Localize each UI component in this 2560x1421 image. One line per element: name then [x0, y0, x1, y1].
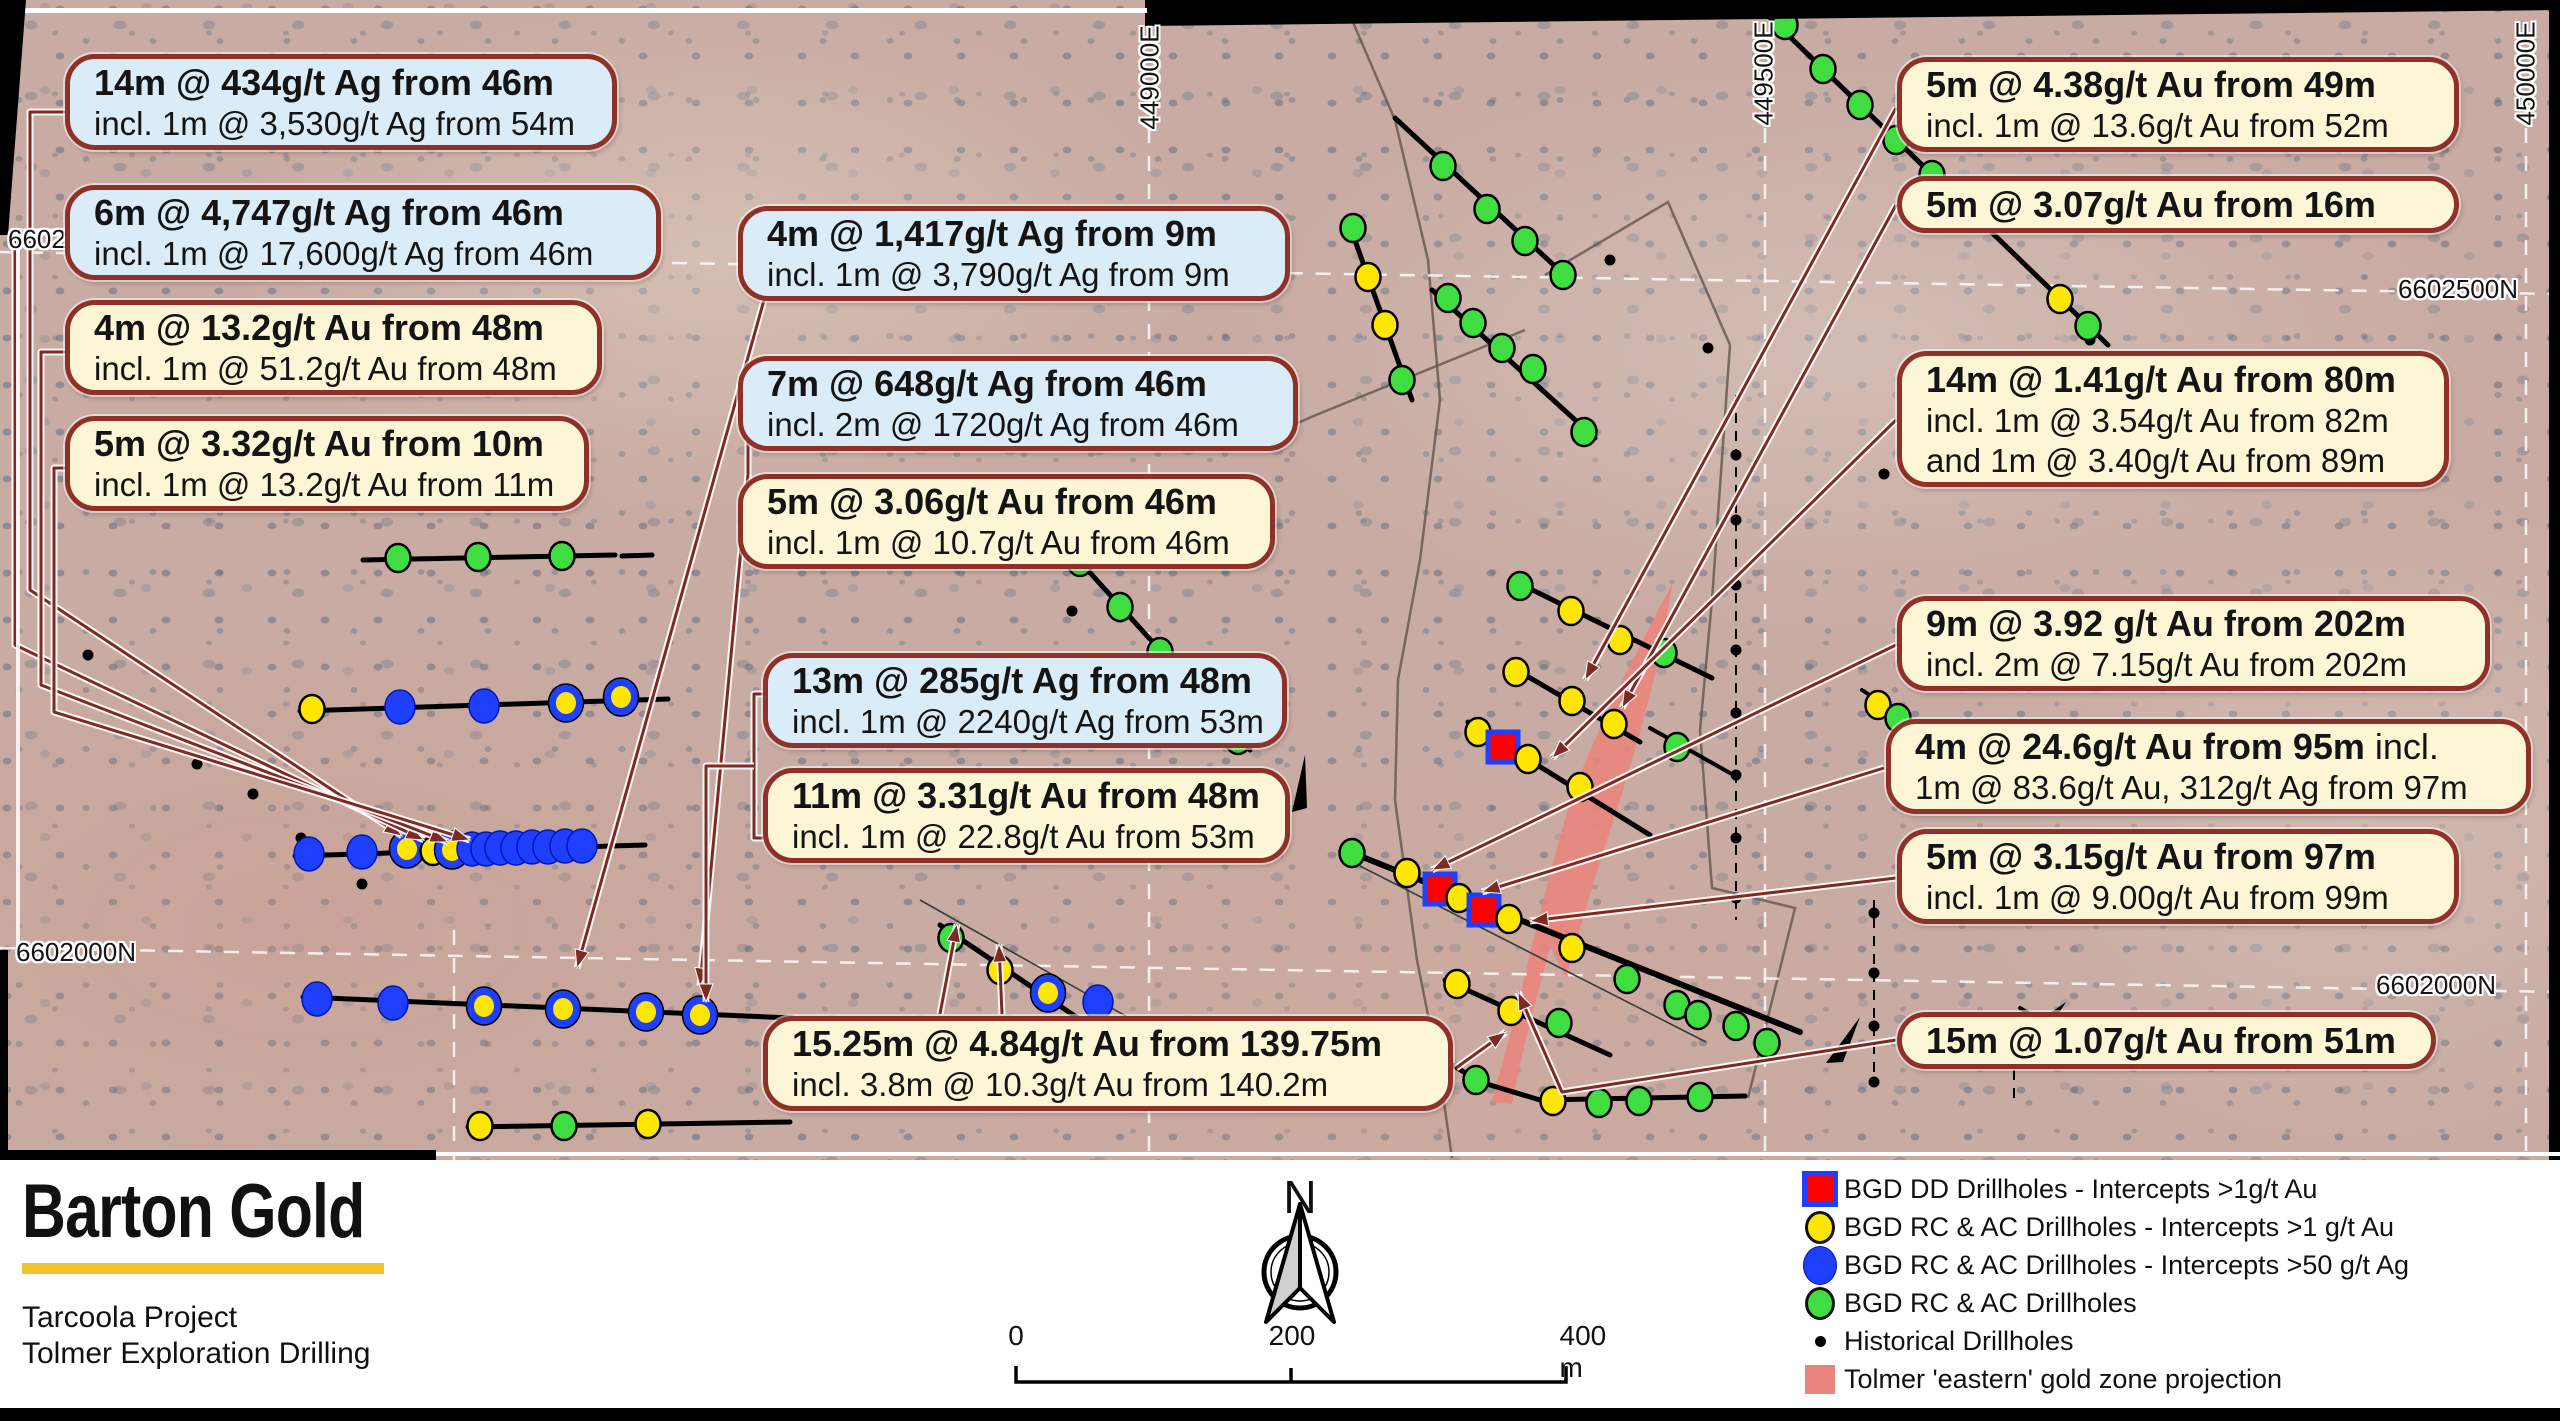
- leader-arrowhead: [1432, 856, 1451, 870]
- map-frame-top: [0, 8, 1147, 13]
- scale-bar-line: [960, 1356, 1660, 1396]
- grid-line: [0, 948, 2560, 992]
- intercept-headline: 5m @ 3.06g/t Au from 46m: [767, 480, 1246, 523]
- intercept-detail: incl. 1m @ 17,600g/t Ag from 46m: [94, 234, 632, 274]
- leader-casing: [706, 766, 754, 1002]
- intercept-callout-c17: 15m @ 1.07g/t Au from 51m: [1897, 1012, 2436, 1069]
- legend-label: BGD RC & AC Drillholes - Intercepts >1 g…: [1844, 1212, 2394, 1243]
- scale-200: 200: [1269, 1320, 1316, 1352]
- legend-label: Historical Drillholes: [1844, 1326, 2074, 1357]
- scale-bar: 0 200 400 m: [960, 1320, 1660, 1400]
- rc-ac-drillhole: [1811, 55, 1836, 83]
- rc-ac-drillhole: [1755, 1029, 1780, 1057]
- ag-ring-drillhole-center: [611, 686, 631, 708]
- historical-drillhole-dot: [83, 650, 94, 661]
- au-intercept-drillhole: [1356, 263, 1381, 291]
- historical-drillhole-dot: [1869, 908, 1880, 919]
- ag-ring-drillhole-center: [397, 838, 417, 860]
- intercept-callout-c11: 5m @ 4.38g/t Au from 49mincl. 1m @ 13.6g…: [1897, 57, 2459, 152]
- rc-ac-drillhole: [1547, 1009, 1572, 1037]
- intercept-detail: incl. 3.8m @ 10.3g/t Au from 140.2m: [792, 1065, 1424, 1105]
- intercept-callout-c5: 4m @ 1,417g/t Ag from 9mincl. 1m @ 3,790…: [738, 206, 1290, 301]
- leader-arrowhead: [993, 944, 1007, 962]
- map-frame-bottom: [436, 1152, 2560, 1156]
- ag-intercept-drillhole: [347, 835, 377, 869]
- imagery-edge-bottom: [0, 1150, 436, 1160]
- rc-ac-drillhole: [2076, 312, 2101, 340]
- intercept-headline: 14m @ 1.41g/t Au from 80m: [1926, 358, 2420, 401]
- au-intercept-drillhole: [1559, 597, 1584, 625]
- au-intercept-drillhole: [1560, 934, 1585, 962]
- rc-ac-drillhole: [1686, 1001, 1711, 1029]
- ag-ring-drillhole-center: [636, 1001, 656, 1023]
- au-intercept-drillhole: [1445, 970, 1470, 998]
- intercept-headline: 5m @ 3.07g/t Au from 16m: [1926, 183, 2430, 226]
- rc-ac-drillhole: [1615, 965, 1640, 993]
- au-intercept-drillhole: [300, 695, 325, 723]
- ag-intercept-drillhole: [469, 689, 499, 723]
- dd-drillhole: [1469, 895, 1499, 925]
- azimuth-flag: [1292, 755, 1307, 812]
- rc-ac-drillhole: [1513, 227, 1538, 255]
- intercept-callout-c12: 5m @ 3.07g/t Au from 16m: [1897, 176, 2459, 233]
- intercept-callout-c15: 4m @ 24.6g/t Au from 95m incl.1m @ 83.6g…: [1886, 719, 2531, 814]
- imagery-edge-right: [2549, 0, 2560, 1160]
- grid-label: 6602000N: [2376, 970, 2496, 1001]
- intercept-callout-c4: 5m @ 3.32g/t Au from 10mincl. 1m @ 13.2g…: [65, 416, 589, 511]
- intercept-headline: 6m @ 4,747g/t Ag from 46m: [94, 191, 632, 234]
- historical-drillhole-dot: [1879, 469, 1890, 480]
- map-area: 449000E449500E450000E6602500N6602500N660…: [0, 0, 2560, 1160]
- drill-fence-line: [1432, 290, 1595, 438]
- rc-ac-drillhole: [1341, 214, 1366, 242]
- intercept-detail: incl. 1m @ 3.54g/t Au from 82m: [1926, 401, 2420, 441]
- historical-drillhole-dot: [1731, 450, 1742, 461]
- scale-0: 0: [1008, 1320, 1024, 1352]
- azimuth-flag: [1826, 1017, 1860, 1063]
- rc-ac-drillhole: [1108, 593, 1133, 621]
- intercept-callout-c16: 5m @ 3.15g/t Au from 97mincl. 1m @ 9.00g…: [1897, 829, 2459, 924]
- intercept-detail: incl. 1m @ 51.2g/t Au from 48m: [94, 349, 573, 389]
- historical-drillhole-dot: [357, 879, 368, 890]
- intercept-detail: incl. 1m @ 2240g/t Ag from 53m: [792, 702, 1258, 742]
- rc-ac-drillhole: [1490, 334, 1515, 362]
- ag-intercept-drillhole: [385, 690, 415, 724]
- legend-item: BGD RC & AC Drillholes: [1796, 1284, 2556, 1322]
- ag-intercept-drillhole: [294, 837, 324, 871]
- intercept-headline: 5m @ 3.15g/t Au from 97m: [1926, 835, 2430, 878]
- rc-ac-drillhole: [1475, 195, 1500, 223]
- ag-ring-drillhole-center: [553, 998, 573, 1020]
- au-intercept-drillhole: [1504, 658, 1529, 686]
- grid-label: 449500E: [1749, 14, 1780, 134]
- legend-item: BGD RC & AC Drillholes - Intercepts >1 g…: [1796, 1208, 2556, 1246]
- historical-drillhole-dot: [1605, 255, 1616, 266]
- dd-drillhole: [1488, 732, 1518, 762]
- intercept-detail: incl. 1m @ 10.7g/t Au from 46m: [767, 523, 1246, 563]
- historical-drillhole-dot: [1869, 1077, 1880, 1088]
- historical-drillhole-dot: [1731, 770, 1742, 781]
- au-intercept-drillhole: [1602, 710, 1627, 738]
- legend-item: BGD DD Drillholes - Intercepts >1g/t Au: [1796, 1170, 2556, 1208]
- intercept-callout-c13: 14m @ 1.41g/t Au from 80mincl. 1m @ 3.54…: [1897, 351, 2449, 487]
- barton-gold-logo: Barton Gold Tarcoola Project Tolmer Expl…: [22, 1168, 450, 1372]
- intercept-detail: incl. 1m @ 3,530g/t Ag from 54m: [94, 104, 588, 144]
- legend-label: BGD RC & AC Drillholes: [1844, 1288, 2137, 1319]
- rc-ac-drillhole: [466, 543, 491, 571]
- intercept-callout-c6: 7m @ 648g/t Ag from 46mincl. 2m @ 1720g/…: [738, 356, 1298, 451]
- intercept-headline: 4m @ 24.6g/t Au from 95m incl.: [1915, 725, 2502, 768]
- ag-ring-drillhole-center: [556, 692, 576, 714]
- blue-circle-icon: [1803, 1246, 1837, 1285]
- page: 449000E449500E450000E6602500N6602500N660…: [0, 0, 2560, 1421]
- bottom-border: [0, 1408, 2560, 1421]
- legend-label: BGD DD Drillholes - Intercepts >1g/t Au: [1844, 1174, 2317, 1205]
- leader-arrowhead: [1482, 880, 1501, 893]
- legend-item: Historical Drillholes: [1796, 1322, 2556, 1360]
- legend-label: BGD RC & AC Drillholes - Intercepts >50 …: [1844, 1250, 2409, 1281]
- ag-ring-drillhole-center: [474, 995, 494, 1017]
- au-intercept-drillhole: [636, 1110, 661, 1138]
- intercept-callout-c14: 9m @ 3.92 g/t Au from 202mincl. 2m @ 7.1…: [1897, 596, 2490, 691]
- intercept-headline: 9m @ 3.92 g/t Au from 202m: [1926, 602, 2461, 645]
- rc-ac-drillhole: [1508, 572, 1533, 600]
- map-frame-left: [16, 235, 20, 950]
- project-name: Tarcoola Project: [22, 1300, 450, 1336]
- intercept-callout-c2: 6m @ 4,747g/t Ag from 46mincl. 1m @ 17,6…: [65, 185, 661, 280]
- intercept-callout-c8: 13m @ 285g/t Ag from 48mincl. 1m @ 2240g…: [763, 653, 1287, 748]
- au-intercept-drillhole: [1560, 687, 1585, 715]
- imagery-edge-left-bottom: [0, 950, 8, 1160]
- legend-item: Tolmer 'eastern' gold zone projection: [1796, 1360, 2556, 1398]
- logo-underline: [22, 1263, 384, 1274]
- intercept-headline: 14m @ 434g/t Ag from 46m: [94, 61, 588, 104]
- rc-ac-drillhole: [1464, 1066, 1489, 1094]
- rc-ac-drillhole: [1340, 839, 1365, 867]
- grid-label: 449000E: [1135, 18, 1166, 138]
- intercept-headline: 11m @ 3.31g/t Au from 48m: [792, 774, 1261, 817]
- leader-casing: [54, 468, 470, 840]
- north-label: N: [1230, 1170, 1370, 1224]
- rc-ac-drillhole: [1551, 261, 1576, 289]
- ag-intercept-drillhole: [302, 982, 332, 1016]
- rc-ac-drillhole: [1436, 284, 1461, 312]
- historical-drillhole-dot: [1869, 1021, 1880, 1032]
- intercept-headline: 4m @ 1,417g/t Ag from 9m: [767, 212, 1261, 255]
- intercept-detail: incl. 2m @ 7.15g/t Au from 202m: [1926, 645, 2461, 685]
- historical-drillhole-dot: [1703, 343, 1714, 354]
- historical-drillhole-dot: [1067, 606, 1078, 617]
- historical-drillhole-dot: [248, 789, 259, 800]
- intercept-headline: 15m @ 1.07g/t Au from 51m: [1926, 1019, 2407, 1062]
- intercept-headline: 15.25m @ 4.84g/t Au from 139.75m: [792, 1022, 1424, 1065]
- au-intercept-drillhole: [1373, 311, 1398, 339]
- ag-intercept-drillhole: [378, 986, 408, 1020]
- leader-line: [1585, 108, 1896, 680]
- footer-bar: Barton Gold Tarcoola Project Tolmer Expl…: [0, 1160, 2560, 1421]
- legend-item: BGD RC & AC Drillholes - Intercepts >50 …: [1796, 1246, 2556, 1284]
- green-circle-icon: [1805, 1287, 1835, 1320]
- historical-drillhole-dot: [1731, 833, 1742, 844]
- au-intercept-drillhole: [468, 1112, 493, 1140]
- ag-intercept-drillhole: [1083, 985, 1113, 1019]
- intercept-detail: incl. 1m @ 9.00g/t Au from 99m: [1926, 878, 2430, 918]
- drill-fence-line: [468, 1122, 790, 1127]
- intercept-detail: incl. 1m @ 3,790g/t Ag from 9m: [767, 255, 1261, 295]
- intercept-headline: 4m @ 13.2g/t Au from 48m: [94, 306, 573, 349]
- rc-ac-drillhole: [1390, 366, 1415, 394]
- map-legend: BGD DD Drillholes - Intercepts >1g/t AuB…: [1796, 1170, 2556, 1398]
- rc-ac-drillhole: [1688, 1083, 1713, 1111]
- leader-line: [1552, 420, 1896, 758]
- intercept-callout-c3: 4m @ 13.2g/t Au from 48mincl. 1m @ 51.2g…: [65, 300, 602, 395]
- grid-label: 6602000N: [16, 937, 136, 968]
- intercept-headline: 5m @ 4.38g/t Au from 49m: [1926, 63, 2430, 106]
- intercept-detail: incl. 1m @ 22.8g/t Au from 53m: [792, 817, 1261, 857]
- rc-ac-drillhole: [1572, 418, 1597, 446]
- intercept-detail: incl. 1m @ 13.6g/t Au from 52m: [1926, 106, 2430, 146]
- intercept-callout-c9: 11m @ 3.31g/t Au from 48mincl. 1m @ 22.8…: [763, 768, 1290, 863]
- intercept-headline: 5m @ 3.32g/t Au from 10m: [94, 422, 560, 465]
- imagery-edge-left-top: [0, 0, 26, 235]
- ag-ring-drillhole-center: [690, 1004, 710, 1026]
- historical-drillhole-dot: [1731, 515, 1742, 526]
- intercept-callout-c1: 14m @ 434g/t Ag from 46mincl. 1m @ 3,530…: [65, 54, 617, 150]
- intercept-detail-2: and 1m @ 3.40g/t Au from 89m: [1926, 441, 2420, 481]
- rc-ac-drillhole: [1521, 355, 1546, 383]
- grid-label: 450000E: [2511, 14, 2542, 134]
- ag-ring-drillhole-center: [1038, 982, 1058, 1004]
- leader-line: [1482, 768, 1884, 892]
- rc-ac-drillhole: [1627, 1087, 1652, 1115]
- drill-fence-line: [622, 555, 652, 556]
- rc-ac-drillhole: [1587, 1089, 1612, 1117]
- hist-dot-icon: [1815, 1336, 1826, 1347]
- rc-ac-drillhole: [1848, 91, 1873, 119]
- leader-line: [706, 766, 754, 1002]
- imagery-edge-top: [1145, 0, 2560, 26]
- au-intercept-drillhole: [1516, 745, 1541, 773]
- intercept-detail: incl. 2m @ 1720g/t Ag from 46m: [767, 405, 1269, 445]
- logo-wordmark: Barton Gold: [22, 1168, 364, 1255]
- au-intercept-drillhole: [1497, 905, 1522, 933]
- ag-intercept-drillhole: [567, 829, 597, 863]
- intercept-detail: incl. 1m @ 13.2g/t Au from 11m: [94, 465, 560, 505]
- rc-ac-drillhole: [1724, 1012, 1749, 1040]
- intercept-callout-c10: 15.25m @ 4.84g/t Au from 139.75mincl. 3.…: [763, 1016, 1453, 1111]
- pink-square-icon: [1805, 1365, 1835, 1394]
- map-subtitle: Tolmer Exploration Drilling: [22, 1336, 450, 1372]
- grid-label: 6602500N: [2398, 274, 2518, 305]
- north-arrow: N: [1230, 1170, 1370, 1330]
- leader-arrowhead: [575, 949, 588, 968]
- rc-ac-drillhole: [386, 544, 411, 572]
- leader-line: [54, 468, 470, 840]
- rc-ac-drillhole: [1431, 152, 1456, 180]
- yellow-circle-icon: [1805, 1211, 1835, 1244]
- map-features-svg: [0, 0, 2560, 1160]
- intercept-callout-c7: 5m @ 3.06g/t Au from 46mincl. 1m @ 10.7g…: [738, 474, 1275, 569]
- intercept-headline: 7m @ 648g/t Ag from 46m: [767, 362, 1269, 405]
- au-intercept-drillhole: [2048, 285, 2073, 313]
- rc-ac-drillhole: [1461, 309, 1486, 337]
- intercept-detail: 1m @ 83.6g/t Au, 312g/t Ag from 97m: [1915, 768, 2502, 808]
- historical-drillhole-dot: [1869, 968, 1880, 979]
- rc-ac-drillhole: [550, 542, 575, 570]
- au-intercept-drillhole: [1395, 859, 1420, 887]
- legend-label: Tolmer 'eastern' gold zone projection: [1844, 1364, 2282, 1395]
- historical-drillhole-dot: [1731, 645, 1742, 656]
- dd-square-icon: [1802, 1171, 1838, 1207]
- intercept-headline: 13m @ 285g/t Ag from 48m: [792, 659, 1258, 702]
- rc-ac-drillhole: [552, 1112, 577, 1140]
